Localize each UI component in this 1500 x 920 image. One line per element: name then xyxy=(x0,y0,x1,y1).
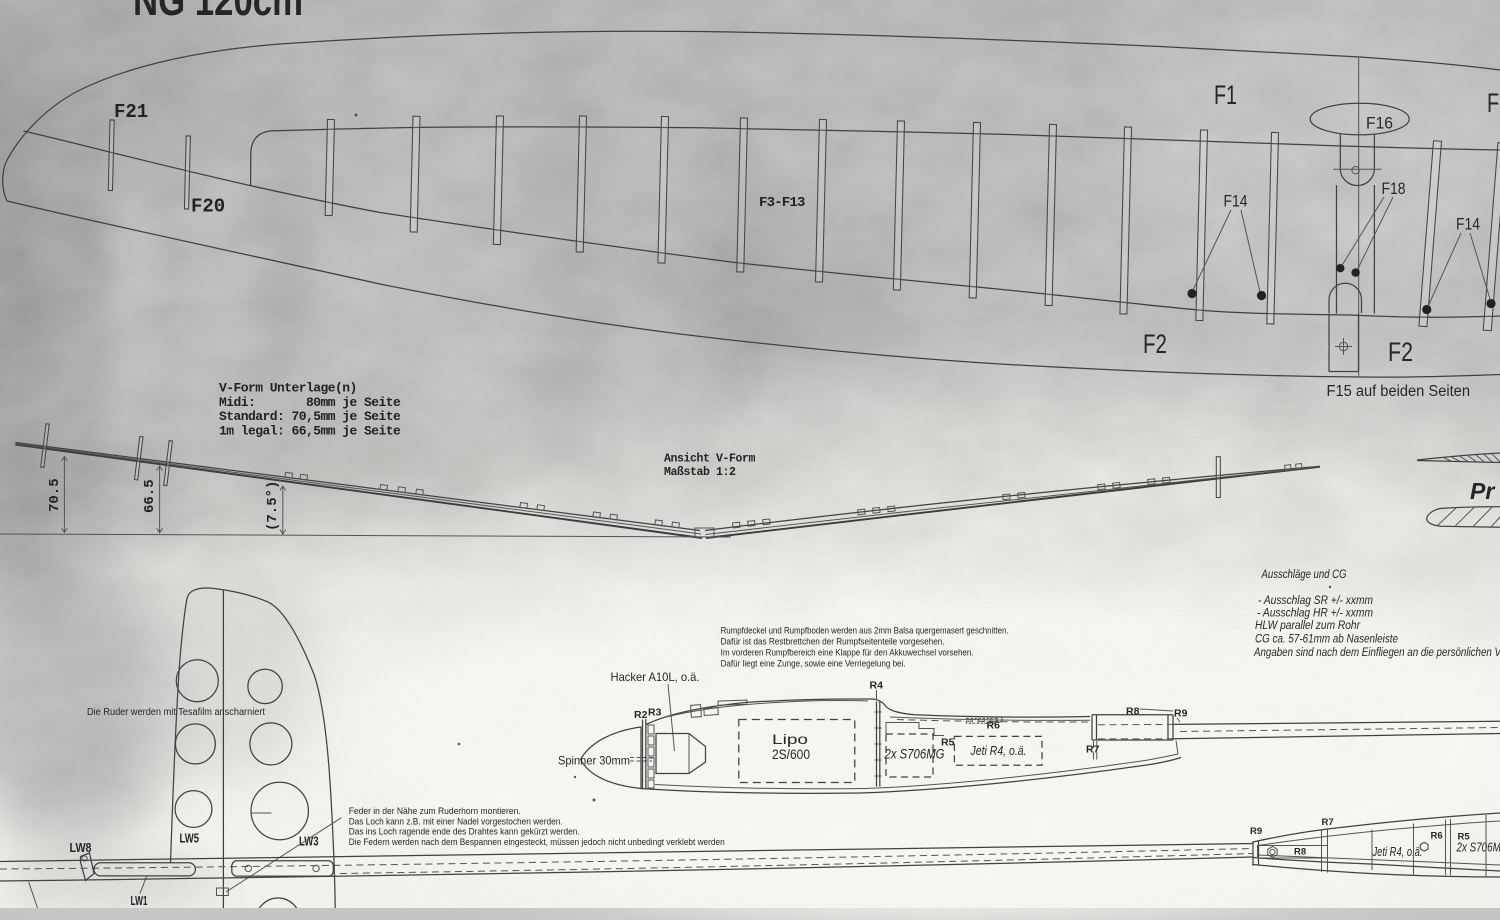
svg-text:2x S706MG: 2x S706MG xyxy=(884,747,945,762)
svg-text:LW1: LW1 xyxy=(131,894,148,908)
svg-text:F3-F13: F3-F13 xyxy=(759,195,805,211)
svg-text:Die Federn werden nach dem Bes: Die Federn werden nach dem Bespannen ein… xyxy=(349,837,725,847)
svg-text:R9: R9 xyxy=(1174,707,1188,719)
svg-text:R7: R7 xyxy=(1322,817,1334,828)
svg-text:2S/600: 2S/600 xyxy=(772,747,810,762)
svg-text:Das ins Loch ragende ende des: Das ins Loch ragende ende des Drahtes ka… xyxy=(349,827,580,837)
svg-text:2x S706MG: 2x S706MG xyxy=(1456,841,1500,855)
svg-text:1m legal: 66,5mm je Seite: 1m legal: 66,5mm je Seite xyxy=(219,423,401,438)
svg-text:F1: F1 xyxy=(1487,88,1500,118)
svg-text:R9: R9 xyxy=(1250,826,1262,837)
svg-text:R8: R8 xyxy=(1294,847,1306,858)
svg-text:R5: R5 xyxy=(941,737,955,749)
svg-text:R6: R6 xyxy=(1431,831,1443,842)
svg-text:Ausschläge und CG: Ausschläge und CG xyxy=(1261,569,1347,581)
svg-text:R3: R3 xyxy=(648,707,662,719)
svg-text:LW3: LW3 xyxy=(299,835,319,849)
svg-text:70.5: 70.5 xyxy=(47,478,63,512)
svg-text:Maßstab 1:2: Maßstab 1:2 xyxy=(664,466,736,479)
svg-text:(7.5°): (7.5°) xyxy=(265,481,281,531)
svg-text:Midi: 80mm je Seite: Midi: 80mm je Seite xyxy=(219,395,401,410)
svg-text:Rumpfdeckel und Rumpfboden wer: Rumpfdeckel und Rumpfboden werden aus 2m… xyxy=(721,626,1009,636)
svg-text:F21: F21 xyxy=(114,101,148,123)
svg-text:HLW parallel zum Rohr: HLW parallel zum Rohr xyxy=(1255,620,1361,632)
svg-text:V-Form Unterlage(n): V-Form Unterlage(n) xyxy=(219,381,357,396)
svg-text:F1: F1 xyxy=(1214,80,1237,110)
svg-text:Dafür liegt eine Zunge, sowie: Dafür liegt eine Zunge, sowie eine Verri… xyxy=(721,659,906,669)
svg-text:Standard: 70,5mm je Seite: Standard: 70,5mm je Seite xyxy=(219,409,401,424)
svg-text:Angaben sind nach dem Einflieg: Angaben sind nach dem Einfliegen an die … xyxy=(1253,647,1500,659)
svg-text:Jeti R4, o.ä.: Jeti R4, o.ä. xyxy=(970,744,1027,758)
svg-text:Im vorderen Rumpfbereich eine: Im vorderen Rumpfbereich eine Klappe für… xyxy=(721,648,974,658)
svg-text:NG 120cm: NG 120cm xyxy=(133,0,303,25)
svg-text:Lipo: Lipo xyxy=(772,732,808,747)
svg-text:F15 auf beiden Seiten: F15 auf beiden Seiten xyxy=(1327,383,1471,400)
svg-text:66.5: 66.5 xyxy=(142,479,158,513)
svg-text:- Ausschlag HR +/- xxmm: - Ausschlag HR +/- xxmm xyxy=(1257,608,1373,620)
svg-text:Pr: Pr xyxy=(1470,478,1495,504)
svg-text:Ansicht V-Form: Ansicht V-Form xyxy=(664,453,756,466)
svg-text:Hacker A10L, o.ä.: Hacker A10L, o.ä. xyxy=(611,670,700,684)
svg-text:F2: F2 xyxy=(1143,329,1167,359)
svg-text:F14: F14 xyxy=(1224,192,1248,211)
svg-text:Jeti R4, o.ä.: Jeti R4, o.ä. xyxy=(1372,845,1423,859)
svg-text:R2: R2 xyxy=(634,709,648,721)
svg-text:LW5: LW5 xyxy=(180,832,200,846)
svg-text:Das Loch kann z.B. mit einer N: Das Loch kann z.B. mit einer Nadel vorge… xyxy=(349,816,563,826)
svg-text:R7: R7 xyxy=(1086,744,1100,756)
svg-text:Die Ruder werden mit Tesafilm: Die Ruder werden mit Tesafilm anscharnie… xyxy=(87,707,265,718)
svg-text:- Ausschlag SR +/- xxmm: - Ausschlag SR +/- xxmm xyxy=(1258,595,1373,607)
svg-text:F16: F16 xyxy=(1366,114,1393,133)
svg-text:CG ca. 57-61mm ab Nasenleiste: CG ca. 57-61mm ab Nasenleiste xyxy=(1255,634,1398,646)
svg-text:F20: F20 xyxy=(191,196,225,218)
svg-text:Spinner 30mm: Spinner 30mm xyxy=(558,754,630,768)
svg-text:F18: F18 xyxy=(1382,179,1406,198)
svg-text:R8: R8 xyxy=(1126,706,1140,718)
svg-text:Dafür ist das Restbrettchen de: Dafür ist das Restbrettchen der Rumpfsei… xyxy=(721,637,945,647)
svg-text:Feder in der Nähe zum Ruderhor: Feder in der Nähe zum Ruderhorn montiere… xyxy=(349,806,521,816)
svg-text:F2: F2 xyxy=(1388,337,1413,367)
svg-text:F14: F14 xyxy=(1456,215,1480,234)
svg-text:R4: R4 xyxy=(870,680,884,692)
